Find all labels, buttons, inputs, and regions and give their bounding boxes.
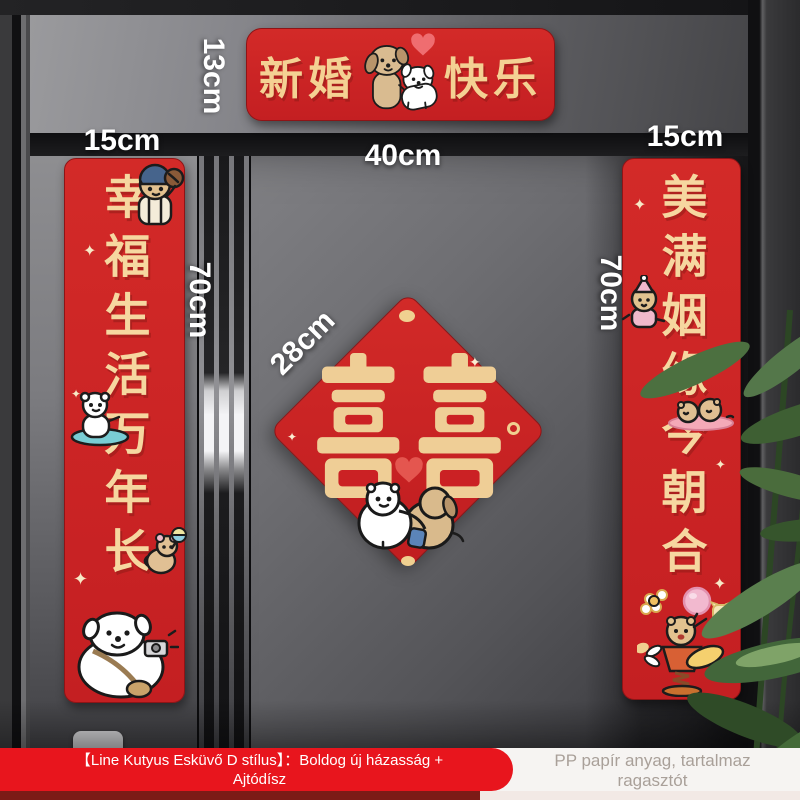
heart-icon (409, 32, 437, 58)
sparkle-icon: ✦ (73, 569, 88, 590)
material-line1: PP papír anyag, tartalmaz (505, 751, 800, 771)
door-slat (219, 156, 229, 758)
sparkle-icon: ✦ (287, 430, 297, 444)
sparkle-icon: ✦ (633, 195, 646, 215)
door-top-edge (0, 0, 800, 15)
coin-deco (507, 422, 520, 435)
sparkle-icon: ✦ (71, 387, 81, 401)
dimension-label-banner-width: 40cm (363, 139, 443, 173)
material-line2: ragasztót (505, 771, 800, 791)
double-happiness-glyph (317, 353, 501, 498)
dimension-label-right-couplet-height: 70cm (593, 253, 627, 333)
footer-dark-strip (0, 791, 480, 800)
footer-product-bar: 【Line Kutyus Esküvő D stílus】：Boldog új … (0, 748, 513, 791)
banner-text-left: 新婚 (259, 43, 357, 107)
dimension-label-right-couplet-width: 15cm (645, 120, 725, 154)
left-couplet-sticker: 幸福生活万年长 ✦ ✦ ✦ (64, 158, 185, 703)
diamond-content: ✦ ✦ (311, 334, 505, 528)
sparkle-icon: ✦ (469, 354, 481, 371)
product-line2: Ajtódísz (40, 770, 479, 789)
peanut-deco (399, 310, 415, 322)
door-frame-left (0, 0, 30, 800)
bear-with-cap-illustration (117, 160, 185, 226)
potted-plant (640, 270, 800, 790)
mouse-with-rattle-illustration (141, 525, 187, 579)
peanut-deco (401, 556, 415, 566)
sparkle-icon: ✦ (83, 241, 96, 261)
hugging-dogs-illustration (353, 481, 473, 551)
door-slat (234, 156, 244, 758)
dog-with-camera-illustration (73, 607, 179, 701)
product-photo-scene: 新婚 快乐 幸福生活万年长 ✦ ✦ ✦ (0, 0, 800, 800)
footer-material-text: PP papír anyag, tartalmaz ragasztót (505, 751, 800, 791)
dimension-label-left-couplet-height: 70cm (182, 260, 216, 340)
banner-text-right: 快乐 (444, 43, 542, 107)
door-center-slats (197, 156, 251, 758)
footer-material-strip-edge (470, 791, 800, 800)
product-line1: 【Line Kutyus Esküvő D stílus】：Boldog új … (40, 751, 479, 770)
wedding-banner-sticker: 新婚 快乐 (246, 28, 555, 121)
door-slat (204, 156, 214, 758)
dimension-label-left-couplet-width: 15cm (82, 124, 162, 158)
dimension-label-banner-height: 13cm (196, 37, 230, 115)
